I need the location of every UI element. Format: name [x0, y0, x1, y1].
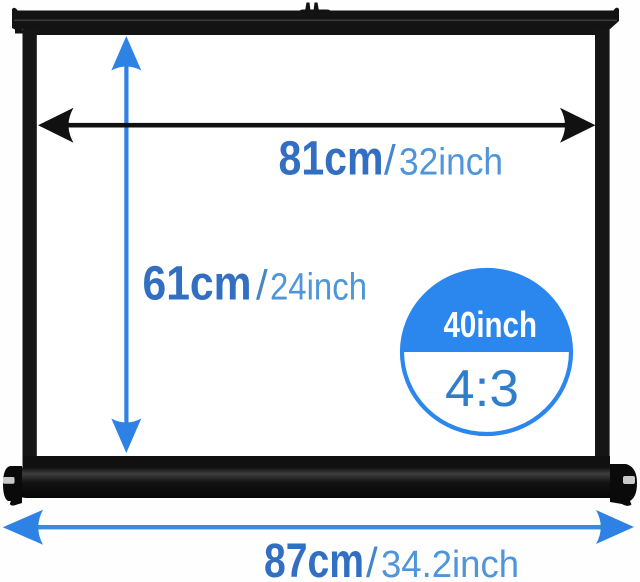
svg-text:32inch: 32inch: [399, 142, 503, 184]
svg-text:/: /: [256, 262, 268, 309]
svg-text:40inch: 40inch: [444, 304, 538, 345]
svg-text:/: /: [384, 137, 396, 184]
svg-text:/: /: [366, 539, 378, 582]
svg-text:24inch: 24inch: [270, 267, 367, 309]
svg-text:34.2inch: 34.2inch: [381, 544, 519, 582]
svg-text:4:3: 4:3: [445, 359, 519, 417]
svg-text:81cm: 81cm: [279, 132, 384, 186]
svg-text:61cm: 61cm: [143, 257, 252, 311]
svg-text:87cm: 87cm: [264, 534, 364, 582]
